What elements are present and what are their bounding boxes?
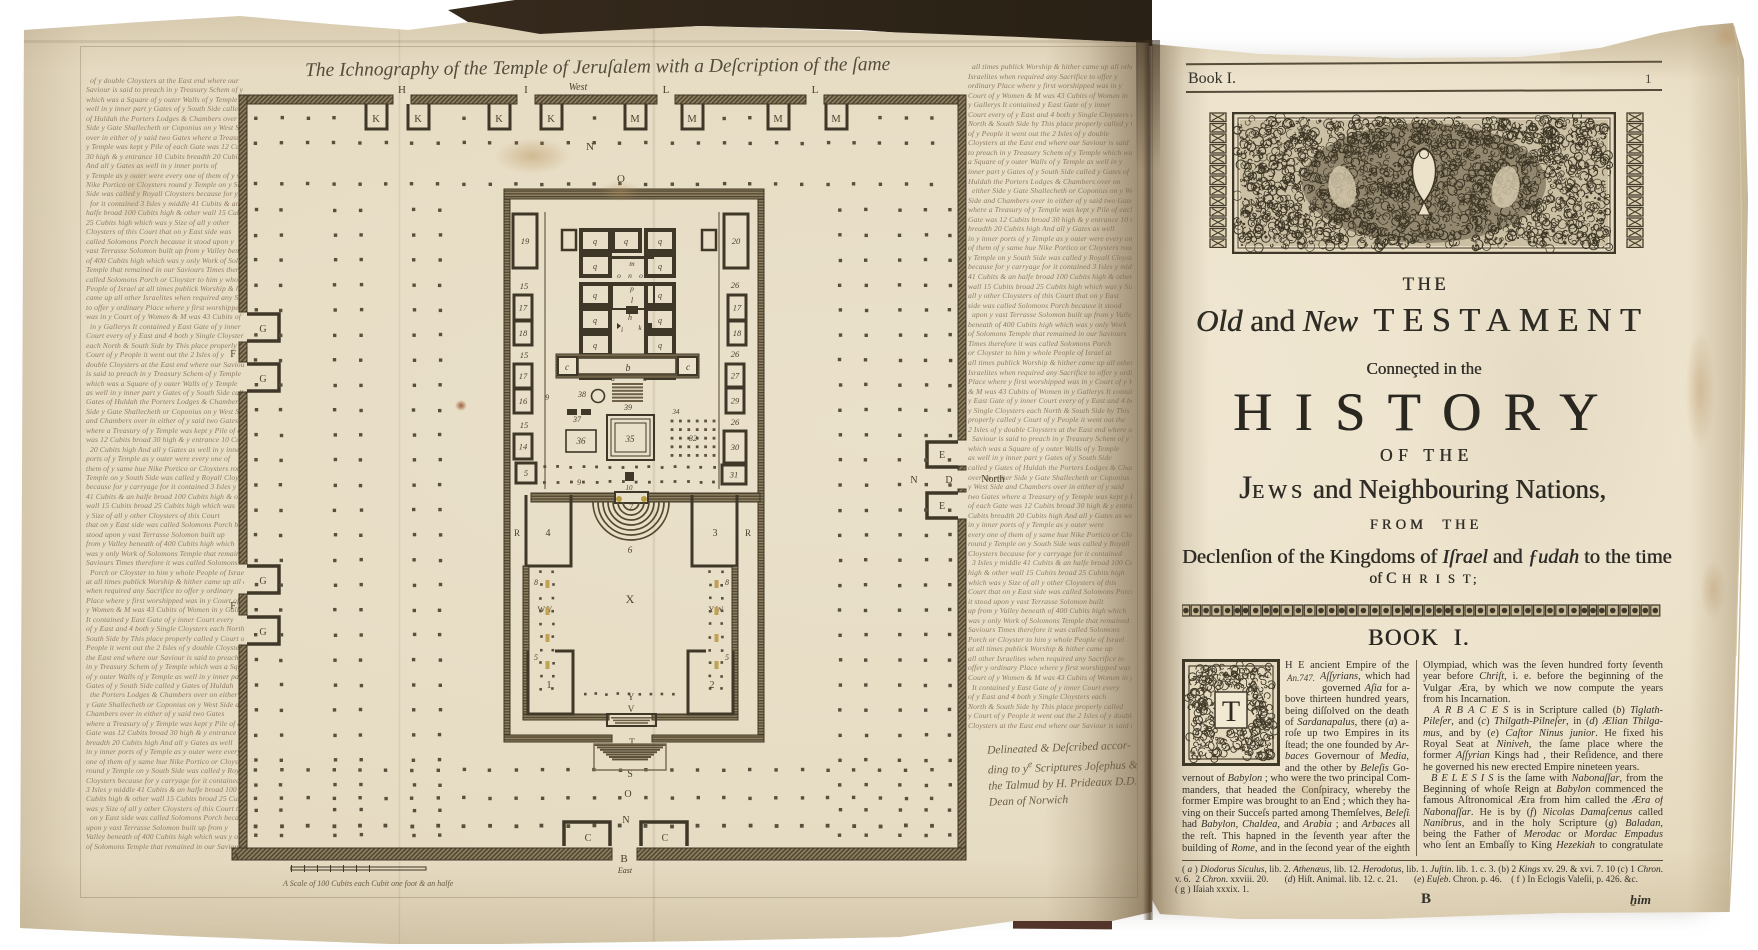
svg-text:East: East	[617, 866, 633, 875]
svg-text:15: 15	[520, 350, 529, 360]
svg-text:20: 20	[732, 236, 741, 246]
svg-text:q: q	[658, 291, 662, 300]
svg-text:15: 15	[520, 420, 529, 430]
svg-text:k: k	[638, 323, 642, 332]
svg-text:L: L	[812, 84, 819, 96]
svg-text:15: 15	[520, 281, 529, 291]
svg-text:a: a	[611, 374, 615, 383]
svg-text:n: n	[628, 271, 632, 280]
svg-text:31: 31	[729, 470, 739, 480]
svg-text:26: 26	[731, 349, 740, 359]
svg-text:West: West	[569, 82, 588, 93]
svg-text:K: K	[495, 114, 503, 125]
svg-text:G: G	[259, 324, 266, 335]
svg-text:10: 10	[626, 484, 634, 492]
svg-text:N: N	[586, 141, 594, 153]
svg-text:29: 29	[731, 396, 740, 406]
svg-text:4: 4	[546, 528, 551, 539]
svg-text:N: N	[622, 815, 629, 826]
svg-text:5: 5	[524, 468, 528, 478]
svg-text:o: o	[639, 271, 643, 280]
svg-text:C: C	[585, 833, 592, 844]
svg-text:F: F	[230, 601, 236, 612]
svg-text:17: 17	[519, 303, 528, 313]
svg-text:q: q	[593, 237, 597, 246]
svg-text:18: 18	[733, 328, 742, 338]
svg-text:26: 26	[731, 280, 740, 290]
svg-text:N: N	[910, 475, 917, 486]
svg-text:8: 8	[534, 578, 538, 587]
svg-text:I: I	[524, 84, 528, 96]
svg-text:3: 3	[713, 528, 718, 539]
svg-text:b: b	[626, 363, 631, 374]
svg-text:38: 38	[577, 390, 586, 399]
svg-text:m: m	[629, 259, 635, 268]
svg-text:19: 19	[521, 236, 530, 246]
svg-text:North: North	[981, 474, 1004, 485]
svg-text:M: M	[773, 114, 783, 125]
svg-text:q: q	[593, 291, 597, 300]
svg-text:G: G	[259, 576, 266, 587]
svg-text:C: C	[662, 833, 669, 844]
svg-text:30: 30	[730, 442, 740, 452]
svg-text:O: O	[624, 789, 631, 800]
svg-text:37: 37	[572, 415, 582, 424]
svg-text:17: 17	[733, 303, 742, 313]
svg-text:34: 34	[672, 408, 681, 416]
svg-text:q: q	[658, 316, 662, 325]
svg-text:X: X	[626, 592, 635, 606]
svg-text:q: q	[658, 237, 662, 246]
svg-text:i: i	[621, 325, 623, 334]
svg-text:36: 36	[576, 436, 587, 446]
svg-text:26: 26	[731, 417, 740, 427]
svg-text:5: 5	[725, 653, 729, 662]
svg-text:L: L	[663, 84, 670, 96]
svg-text:B: B	[620, 853, 627, 865]
svg-text:8: 8	[725, 578, 729, 587]
svg-text:W Y: W Y	[538, 605, 553, 614]
svg-text:14: 14	[519, 442, 528, 452]
svg-text:M: M	[687, 114, 697, 125]
svg-text:F: F	[230, 349, 236, 360]
svg-text:A Scale of 100 Cubits each Cub: A Scale of 100 Cubits each Cubit one foo…	[282, 879, 454, 888]
svg-text:A: A	[232, 852, 240, 863]
svg-text:5: 5	[534, 653, 538, 662]
svg-text:q: q	[593, 341, 597, 350]
svg-text:6: 6	[628, 545, 633, 555]
svg-text:T: T	[1222, 695, 1240, 728]
svg-text:1: 1	[547, 680, 552, 691]
svg-text:Y: Y	[628, 692, 635, 702]
svg-text:h: h	[628, 313, 632, 322]
svg-text:R: R	[514, 528, 520, 538]
svg-text:E: E	[939, 450, 945, 461]
svg-text:E: E	[939, 501, 945, 512]
svg-text:M: M	[630, 114, 640, 125]
svg-text:l: l	[631, 296, 634, 305]
svg-text:17: 17	[519, 371, 528, 381]
svg-text:q: q	[658, 341, 662, 350]
svg-text:o: o	[617, 271, 621, 280]
svg-text:9: 9	[545, 393, 549, 402]
svg-text:q: q	[658, 262, 662, 271]
svg-text:H: H	[398, 84, 406, 96]
svg-text:R: R	[745, 528, 751, 538]
svg-text:G: G	[259, 627, 266, 638]
svg-text:V: V	[628, 704, 635, 714]
svg-text:q: q	[624, 237, 628, 246]
svg-text:27: 27	[731, 371, 740, 381]
svg-text:39: 39	[623, 403, 632, 412]
svg-text:q: q	[593, 262, 597, 271]
svg-text:K: K	[414, 114, 422, 125]
svg-text:K: K	[547, 114, 555, 125]
svg-text:c: c	[686, 362, 690, 372]
svg-text:32: 32	[688, 434, 697, 443]
svg-text:9: 9	[577, 478, 581, 487]
svg-text:a: a	[643, 374, 647, 383]
svg-text:c: c	[565, 362, 569, 372]
svg-text:M: M	[831, 114, 841, 125]
svg-text:16: 16	[519, 396, 528, 406]
svg-text:p: p	[629, 284, 634, 293]
svg-text:K: K	[372, 114, 380, 125]
svg-text:q: q	[593, 316, 597, 325]
svg-text:2: 2	[710, 680, 715, 691]
svg-text:18: 18	[519, 328, 528, 338]
svg-text:G: G	[259, 374, 266, 385]
svg-text:35: 35	[625, 434, 636, 444]
